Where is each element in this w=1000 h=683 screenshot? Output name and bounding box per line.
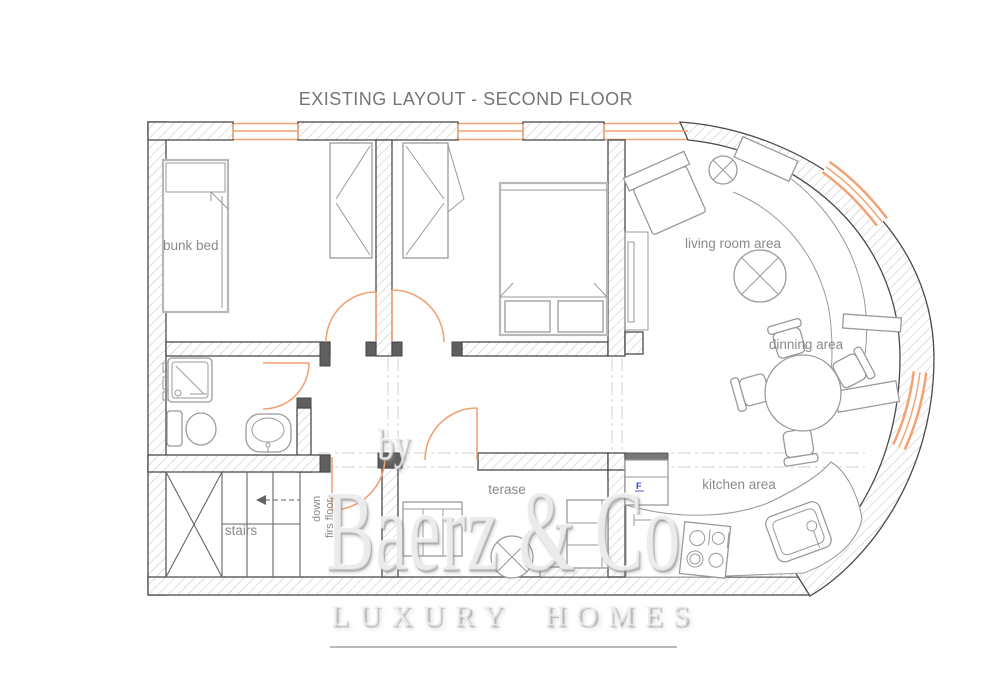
- wall-bedroom-divider: [376, 140, 392, 356]
- label-bunk-bed: bunk bed: [163, 238, 219, 253]
- pivot-block: [366, 342, 376, 356]
- fridge-marker-label: F: [636, 481, 642, 491]
- label-stairs-direction-1: down: [311, 496, 323, 522]
- page-title: EXISTING LAYOUT - SECOND FLOOR: [299, 89, 633, 109]
- wall-bath-stairs-divider: [148, 455, 330, 472]
- pivot-block: [320, 455, 330, 472]
- label-dining: dinning area: [769, 337, 844, 352]
- terrace-sofa-left: [403, 502, 462, 556]
- dining-chair: [780, 428, 819, 467]
- side-table-icon: [709, 156, 737, 184]
- armchair-icon: [624, 151, 710, 236]
- coffee-table-icon: [734, 250, 786, 302]
- wall-bunkroom-south: [166, 342, 330, 356]
- wall-top-1: [148, 122, 233, 140]
- wall-living-west: [608, 140, 625, 356]
- double-bed-icon: [500, 183, 607, 335]
- terrace-table-icon: [491, 536, 533, 578]
- dining-table-icon: [765, 355, 841, 431]
- door-stairs-hall: [332, 457, 385, 510]
- wall-terrace-east: [608, 470, 625, 577]
- pivot-block: [297, 398, 311, 408]
- floor-plan-page: EXISTING LAYOUT - SECOND FLOOR: [0, 0, 1000, 683]
- wall-top-2: [298, 122, 458, 140]
- doors: [263, 290, 477, 510]
- label-terrace: terase: [488, 482, 526, 497]
- kitchen-fixtures: F: [625, 453, 862, 578]
- pivot-block: [378, 453, 402, 468]
- wall-tv-nook: [625, 332, 643, 354]
- terrace-sofa-right: [567, 500, 608, 568]
- terrace-furniture: [403, 500, 608, 578]
- label-stairs-direction-2: firs floor: [324, 499, 336, 538]
- pivot-block: [452, 342, 462, 356]
- shower-icon: [163, 358, 212, 402]
- wall-bottom: [148, 577, 810, 595]
- toilet-icon: [167, 411, 216, 446]
- wall-terrace-west: [382, 468, 398, 577]
- door-bunkroom: [326, 292, 376, 342]
- floor-plan-drawing: EXISTING LAYOUT - SECOND FLOOR: [0, 0, 1000, 683]
- tv-icon: [625, 232, 648, 330]
- wall-top-3: [523, 122, 604, 140]
- wardrobe-icon-right: [403, 143, 464, 258]
- stairs-arrow: [256, 495, 266, 505]
- bunk-bed-icon: [163, 160, 228, 312]
- wall-bedroom2-south: [462, 342, 608, 356]
- door-bedroom2: [392, 290, 444, 342]
- bath-sink-icon: [246, 414, 291, 453]
- bathroom-fixtures: [163, 358, 291, 453]
- label-living-room: living room area: [685, 236, 782, 251]
- wall-terrace-north: [478, 453, 608, 470]
- pivot-block: [320, 342, 330, 366]
- door-kitchen-passage: [425, 408, 477, 460]
- pivot-block: [392, 342, 402, 356]
- stove-icon: [679, 522, 730, 579]
- wardrobe-icon-left: [330, 143, 372, 258]
- label-kitchen: kitchen area: [702, 477, 776, 492]
- label-stairs: stairs: [225, 523, 258, 538]
